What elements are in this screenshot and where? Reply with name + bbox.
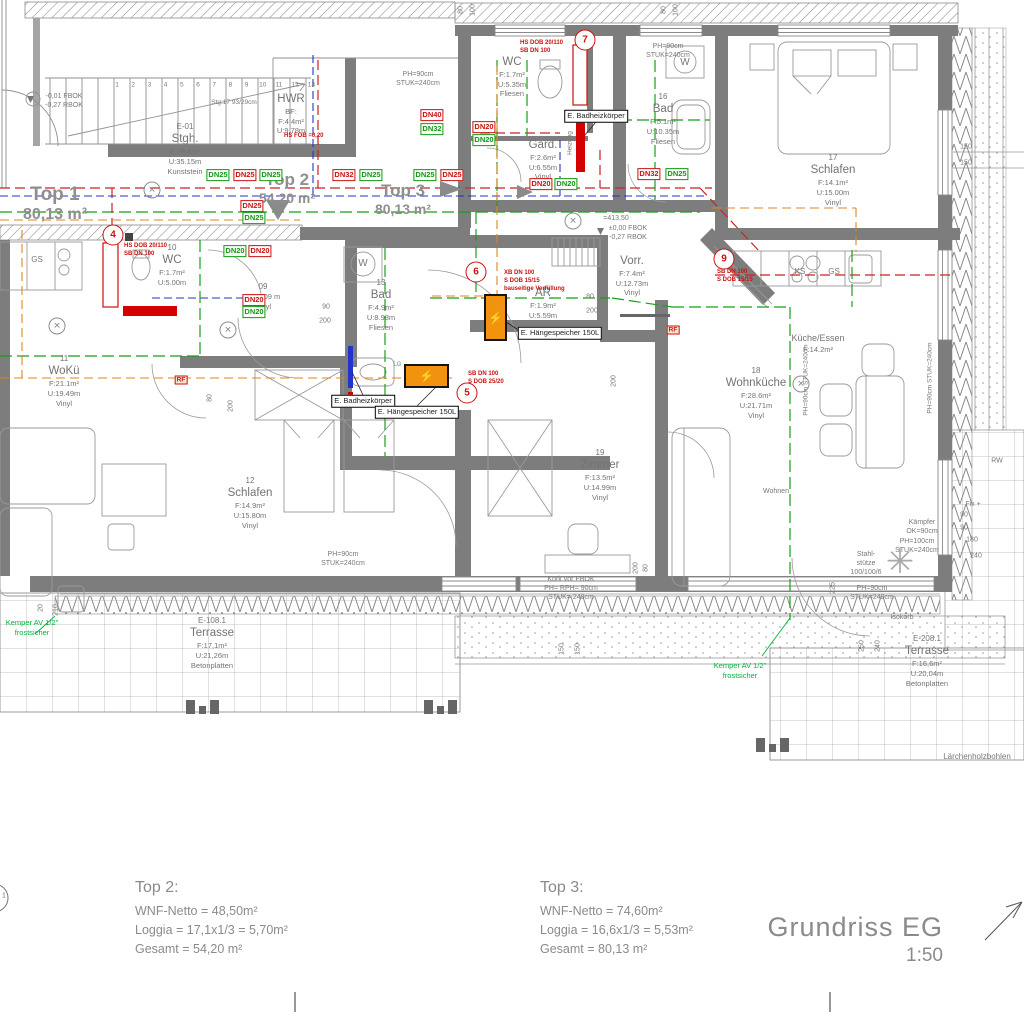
red-annotation: SB DN 100S DOB 15/15 <box>717 269 753 285</box>
note-line: PH= RPH= 90cm <box>544 584 598 593</box>
pipe-size-label: DN20 <box>472 121 495 133</box>
room-info-line: F:14.9m² <box>228 501 273 511</box>
plumbing-marker: 9 <box>714 249 735 270</box>
room-label: 13BadF:4.9m²U:8.98mFliesen <box>367 278 395 333</box>
note-line: HS DOB 20/110 <box>520 40 563 48</box>
room-number: E-208.1 <box>905 634 949 644</box>
room-info-line: F:1.7m² <box>498 70 526 80</box>
stair-tread-number: 5 <box>180 82 184 89</box>
dimension-text: 150 <box>960 144 972 151</box>
pipe-size-label: DN25 <box>259 169 282 181</box>
dimension-text: 225 <box>830 582 837 594</box>
room-name: HWR <box>277 92 305 107</box>
stair-tread-number: 8 <box>229 82 233 89</box>
summary-top2-line2: Loggia = 17,1x1/3 = 5,70m² <box>135 921 288 940</box>
room-info-line: Fliesen <box>498 89 526 99</box>
rotated-annotation: PH=90cm STUK=240cm <box>927 342 934 413</box>
unit-label: Top 380,13 m² <box>375 181 431 217</box>
room-number: 13 <box>367 278 395 288</box>
note-line: frostsicher <box>6 628 59 638</box>
room-name: Terrasse <box>190 626 234 641</box>
stair-tread-number: 2 <box>131 82 135 89</box>
room-label: Küche/EssenF:14.2m² <box>791 333 844 354</box>
summary-top2-line1: WNF-Netto = 48,50m² <box>135 902 288 921</box>
note-line: SB DN 100 <box>124 251 167 259</box>
gray-annotation: Lärchenholzbohlen <box>943 752 1011 762</box>
room-info-line: U:14.99m <box>581 483 620 493</box>
pipe-size-label: DN25 <box>242 212 265 224</box>
room-name: Stgh. <box>167 132 202 147</box>
gray-annotation: Fix + <box>965 500 980 509</box>
pipe-size-label: DN32 <box>637 168 660 180</box>
gray-annotation: Lü <box>393 360 401 369</box>
room-info-line: Vinyl <box>48 399 81 409</box>
room-number: E-01 <box>167 122 202 132</box>
gray-annotation: Stg:17 93/29cm <box>211 99 257 107</box>
ceiling-lamp-icon: ✕ <box>220 322 237 339</box>
room-name: Zimmer <box>581 458 620 473</box>
dimension-text: 150 <box>960 160 972 167</box>
dimension-text: 200 <box>586 308 598 315</box>
room-label: 19ZimmerF:13.5m²U:14.99mVinyl <box>581 448 620 503</box>
note-line: -0,01 FBOK <box>45 92 83 101</box>
note-line: XB DN 100 <box>504 270 565 278</box>
room-info-line: F:4.9m² <box>367 303 395 313</box>
room-name: Terrasse <box>905 644 949 659</box>
equipment-label: E. Hängespeicher 150L <box>518 327 602 340</box>
electric-heater-icon: ⚡ <box>404 364 449 388</box>
dimension-text: 90 <box>960 525 968 532</box>
summary-top3: Top 3: WNF-Netto = 74,60m² Loggia = 16,6… <box>540 876 693 958</box>
room-info-line: F:1.7m² <box>158 268 186 278</box>
note-line: GS <box>828 267 840 277</box>
ceiling-lamp-icon: ✕ <box>144 182 161 199</box>
room-label: 11WoKüF:21.1m²U:19.49mVinyl <box>48 354 81 409</box>
stair-tread-number: 7 <box>212 82 216 89</box>
note-line: PH=90cm <box>321 550 365 559</box>
stair-tread-number: 3 <box>148 82 152 89</box>
note-line: S DOB 25/20 <box>468 379 504 387</box>
dimension-text: 200 <box>228 400 235 412</box>
note-line: Kämpfer <box>906 518 937 527</box>
dimension-text: 80 <box>643 564 650 572</box>
note-line: bauseitige Verfüllung <box>504 286 565 294</box>
room-info-line: F:4.4m² <box>277 117 305 127</box>
room-label: 18WohnkücheF:28.6m²U:21.71mVinyl <box>726 366 787 421</box>
pipe-size-label: DN20 <box>223 245 246 257</box>
room-name: Bad <box>367 288 395 303</box>
room-number: 12 <box>228 476 273 486</box>
gray-annotation: -0,01 FBOK-0,27 RBOK <box>45 92 83 110</box>
plan-scale: 1:50 <box>767 945 943 967</box>
stair-tread-number: 9 <box>245 82 249 89</box>
plan-title-text: Grundriss EG <box>767 912 943 943</box>
room-info-line: F:17,1m² <box>190 641 234 651</box>
note-line: SB DN 100 <box>717 269 753 277</box>
note-line: Kemper AV 1/2" <box>714 661 767 671</box>
unit-name: Top 3 <box>375 181 431 201</box>
room-name: Vorr. <box>616 254 649 269</box>
room-label: 16BadF:5.1m²U:10.35mFliesen <box>647 92 680 147</box>
plant-symbol: ✳ <box>886 545 915 579</box>
room-info-line: Fliesen <box>367 323 395 333</box>
note-line: PH=90cm <box>646 42 690 51</box>
dimension-text: 200 <box>633 562 640 574</box>
note-line: SB DN 100 <box>520 48 563 56</box>
gray-annotation: KS <box>795 267 806 277</box>
dimension-text: 100 <box>673 4 680 16</box>
room-info-line: U:20,04m <box>905 669 949 679</box>
note-line: S DOB 15/15 <box>717 277 753 285</box>
note-line: HS FOB =0,20 <box>284 133 324 141</box>
pipe-size-label: DN20 <box>554 178 577 190</box>
dimension-text: 150 <box>575 643 582 655</box>
plan-annotations: E-01Stgh.F:29.6m²U:35.15mKunststeinHWRBF… <box>0 0 1024 1024</box>
pipe-size-label: DN40 <box>420 109 443 121</box>
room-info-line: F:13.5m² <box>581 473 620 483</box>
unit-label: Top 180,13 m² <box>23 184 87 224</box>
red-annotation: SB DN 100S DOB 25/20 <box>468 371 504 387</box>
summary-top3-line3: Gesamt = 80,13 m² <box>540 940 693 959</box>
room-info-line: Kunststein <box>167 167 202 177</box>
dimension-text: 80 <box>458 6 465 14</box>
ceiling-lamp-icon: ✕ <box>793 376 810 393</box>
pipe-size-label: DN20 <box>529 178 552 190</box>
gray-annotation: W <box>358 257 367 270</box>
plumbing-marker: 6 <box>466 262 487 283</box>
note-line: W <box>680 56 689 69</box>
stair-tread-number: 10 <box>259 82 266 89</box>
room-info-line: Betonplatten <box>905 679 949 689</box>
pipe-size-label: DN25 <box>359 169 382 181</box>
room-name: Küche/Essen <box>791 333 844 345</box>
room-name: Schlafen <box>811 163 856 178</box>
room-name: WC <box>498 55 526 70</box>
note-line: ±0,00 FBOK <box>609 224 647 233</box>
note-line: Kork vor FBOK <box>544 575 598 584</box>
room-info-line: Vinyl <box>726 411 787 421</box>
stair-tread-number: 1 <box>115 82 119 89</box>
note-line: stütze <box>850 559 881 568</box>
note-line: Fix + <box>965 500 980 509</box>
note-line: PH=90cm <box>850 584 894 593</box>
room-info-line: F:14.2m² <box>791 345 844 355</box>
rotated-annotation: Heizung <box>567 131 574 155</box>
room-info-line: Betonplatten <box>190 661 234 671</box>
note-line: frostsicher <box>714 671 767 681</box>
room-info-line: F:29.6m² <box>167 147 202 157</box>
room-info-line: Vinyl <box>581 493 620 503</box>
dimension-text: 150 <box>559 643 566 655</box>
room-info-line: BF: <box>277 107 305 117</box>
gray-annotation: PH=90cmSTUK=240cm <box>321 550 365 568</box>
pipe-size-label: DN20 <box>242 294 265 306</box>
note-line: Lü <box>393 360 401 369</box>
note-line: 100/100/6 <box>850 568 881 577</box>
dimension-text: 240 <box>970 553 982 560</box>
plumbing-marker: 7 <box>575 30 596 51</box>
gray-annotation: Isokorb <box>891 613 914 622</box>
room-info-line: U:5.35m <box>498 80 526 90</box>
floor-plan-canvas: E-01Stgh.F:29.6m²U:35.15mKunststeinHWRBF… <box>0 0 1024 1024</box>
lightning-bolt-icon: ⚡ <box>419 369 434 383</box>
room-info-line: U:21,26m <box>190 651 234 661</box>
gray-annotation: PH=90cmSTUK=240cm <box>850 584 894 602</box>
room-number: 18 <box>726 366 787 376</box>
summary-top3-line2: Loggia = 16,6x1/3 = 5,53m² <box>540 921 693 940</box>
note-line: PH=90cm <box>396 70 440 79</box>
plan-title: Grundriss EG 1:50 <box>767 912 943 967</box>
dimension-text: 90 <box>960 512 968 519</box>
pipe-size-label: DN20 <box>248 245 271 257</box>
note-line: HS DOB 20/110 <box>124 243 167 251</box>
room-label: 17SchlafenF:14.1m²U:15.00mVinyl <box>811 153 856 208</box>
ceiling-lamp-icon: ✕ <box>565 213 582 230</box>
room-info-line: Fliesen <box>647 137 680 147</box>
room-info-line: U:12.73m <box>616 279 649 289</box>
dimension-text: 250 <box>859 640 866 652</box>
note-line: -0,27 RBOK <box>609 233 647 242</box>
dimension-text: 80 <box>207 394 214 402</box>
note-line: Stahl- <box>850 550 881 559</box>
note-line: STUK=240cm <box>396 79 440 88</box>
dimension-text: 80 <box>586 294 594 301</box>
room-number: 19 <box>581 448 620 458</box>
stair-tread-number: 13 <box>308 82 315 89</box>
stair-tread-number: 6 <box>196 82 200 89</box>
dimension-text: 180 <box>966 537 978 544</box>
room-label: WCF:1.7m²U:5.35mFliesen <box>498 55 526 99</box>
note-line: W <box>358 257 367 270</box>
dimension-text: 80 <box>661 6 668 14</box>
pipe-size-label: DN20 <box>242 306 265 318</box>
room-info-line: Vinyl <box>811 198 856 208</box>
unit-area: 54,20 m² <box>259 190 315 206</box>
note-line: KS <box>795 267 806 277</box>
note-line: Kemper AV 1/2" <box>6 618 59 628</box>
unit-area: 80,13 m² <box>375 201 431 217</box>
frost-tap-note: Kemper AV 1/2"frostsicher <box>6 618 59 638</box>
room-info-line: U:6.55m <box>529 163 558 173</box>
note-line: S DOB 15/15 <box>504 278 565 286</box>
room-label: Gard.F:2.6m²U:6.55mVinyl <box>529 138 558 182</box>
room-info-line: F:21.1m² <box>48 379 81 389</box>
gray-annotation: GS <box>828 267 840 277</box>
note-line: Wohnen <box>763 487 789 496</box>
room-info-line: U:8.98m <box>367 313 395 323</box>
pipe-size-label: DN32 <box>332 169 355 181</box>
room-info-line: F:2.6m² <box>529 153 558 163</box>
room-info-line: F:7.4m² <box>616 269 649 279</box>
summary-top2-line3: Gesamt = 54,20 m² <box>135 940 288 959</box>
stair-tread-number: 4 <box>164 82 168 89</box>
room-info-line: U:19.49m <box>48 389 81 399</box>
room-name: Wohnküche <box>726 376 787 391</box>
room-number: E-108.1 <box>190 616 234 626</box>
dimension-text: 90 <box>322 304 330 311</box>
summary-top2: Top 2: WNF-Netto = 48,50m² Loggia = 17,1… <box>135 876 288 958</box>
lightning-bolt-icon: ⚡ <box>488 311 503 325</box>
room-label: E-208.1TerrasseF:16,6m²U:20,04mBetonplat… <box>905 634 949 689</box>
note-line: STUK= 240cm <box>544 593 598 602</box>
gray-annotation: Kork vor FBOKPH= RPH= 90cmSTUK= 240cm <box>544 575 598 602</box>
summary-top3-line1: WNF-Netto = 74,60m² <box>540 902 693 921</box>
note-line: -0,27 RBOK <box>45 101 83 110</box>
room-number: 09 <box>246 282 281 292</box>
room-label: E-108.1TerrasseF:17,1m²U:21,26mBetonplat… <box>190 616 234 671</box>
dimension-text: 1 <box>2 893 6 900</box>
gray-annotation: Wohnen <box>763 487 789 496</box>
unit-name: Top 1 <box>23 184 87 206</box>
room-label: E-01Stgh.F:29.6m²U:35.15mKunststein <box>167 122 202 177</box>
room-name: Bad <box>647 102 680 117</box>
room-number: 16 <box>647 92 680 102</box>
room-info-line: U:15.00m <box>811 188 856 198</box>
pipe-size-label: DN25 <box>240 200 263 212</box>
room-info-line: U:15.80m <box>228 511 273 521</box>
room-label: 12SchlafenF:14.9m²U:15.80mVinyl <box>228 476 273 531</box>
dimension-text: 210 <box>53 604 60 616</box>
gray-annotation: GS <box>31 255 43 265</box>
gray-annotation: ±0,00 FBOK-0,27 RBOK <box>609 224 647 242</box>
room-info-line: F:5.1m² <box>647 117 680 127</box>
note-line: OK=90cm <box>906 527 937 536</box>
edge-label: RW <box>991 458 1003 465</box>
room-info-line: Vinyl <box>228 521 273 531</box>
ceiling-lamp-icon: ✕ <box>49 318 66 335</box>
room-info-line: F:28.6m² <box>726 391 787 401</box>
rf-marker: RF <box>667 326 680 335</box>
stair-tread-number: 11 <box>276 82 283 89</box>
pipe-size-label: DN25 <box>233 169 256 181</box>
gray-annotation: KämpferOK=90cm <box>906 518 937 536</box>
dimension-text: 200 <box>319 318 331 325</box>
red-annotation: HS DOB 20/110SB DN 100 <box>124 243 167 259</box>
room-info-line: F:1.9m² <box>529 301 557 311</box>
room-info-line: Vinyl <box>616 288 649 298</box>
red-annotation: HS FOB =0,20 <box>284 133 324 141</box>
note-line: GS <box>31 255 43 265</box>
rf-marker: RF <box>175 376 188 385</box>
room-info-line: U:10.35m <box>647 127 680 137</box>
dimension-text: 100 <box>470 4 477 16</box>
pipe-size-label: DN20 <box>472 134 495 146</box>
note-line: Stg:17 93/29cm <box>211 99 257 107</box>
equipment-label: E. Hängespeicher 150L <box>375 406 459 419</box>
room-number: 17 <box>811 153 856 163</box>
room-name: Gard. <box>529 138 558 153</box>
pipe-size-label: DN32 <box>420 123 443 135</box>
note-line: SB DN 100 <box>468 371 504 379</box>
room-info-line: U:5.00m <box>158 278 186 288</box>
note-line: STUK=240cm <box>850 593 894 602</box>
note-line: =413,50 <box>603 214 629 223</box>
equipment-label: E. Badheizkörper <box>564 110 628 123</box>
red-annotation: XB DN 100S DOB 15/15bauseitige Verfüllun… <box>504 270 565 293</box>
room-label: Vorr.F:7.4m²U:12.73mVinyl <box>616 254 649 298</box>
dimension-text: 20 <box>38 604 45 612</box>
room-info-line: F:16,6m² <box>905 659 949 669</box>
stair-tread-number: 12 <box>292 82 299 89</box>
pipe-size-label: DN25 <box>665 168 688 180</box>
gray-annotation: Stahl-stütze100/100/6 <box>850 550 881 577</box>
frost-tap-note: Kemper AV 1/2"frostsicher <box>714 661 767 681</box>
pipe-size-label: DN25 <box>440 169 463 181</box>
gray-annotation: W <box>680 56 689 69</box>
room-label: HWRBF:F:4.4m²U:9.78m <box>277 92 305 136</box>
note-line: Lärchenholzbohlen <box>943 752 1011 762</box>
summary-top3-heading: Top 3: <box>540 876 693 900</box>
summary-top2-heading: Top 2: <box>135 876 288 900</box>
note-line: Isokorb <box>891 613 914 622</box>
gray-annotation: =413,50 <box>603 214 629 223</box>
electric-heater-icon: ⚡ <box>484 294 507 341</box>
room-name: WoKü <box>48 364 81 379</box>
room-info-line: U:5.59m <box>529 311 557 321</box>
room-number: 11 <box>48 354 81 364</box>
room-info-line: F:14.1m² <box>811 178 856 188</box>
pipe-size-label: DN25 <box>206 169 229 181</box>
pipe-size-label: DN25 <box>413 169 436 181</box>
gray-annotation: PH=90cmSTUK=240cm <box>396 70 440 88</box>
dimension-text: 240 <box>875 640 882 652</box>
room-info-line: U:21.71m <box>726 401 787 411</box>
plumbing-marker: 4 <box>103 225 124 246</box>
red-annotation: HS DOB 20/110SB DN 100 <box>520 40 563 56</box>
room-info-line: U:35.15m <box>167 157 202 167</box>
room-name: Schlafen <box>228 486 273 501</box>
unit-area: 80,13 m² <box>23 206 87 224</box>
dimension-text: 200 <box>611 375 618 387</box>
note-line: STUK=240cm <box>321 559 365 568</box>
